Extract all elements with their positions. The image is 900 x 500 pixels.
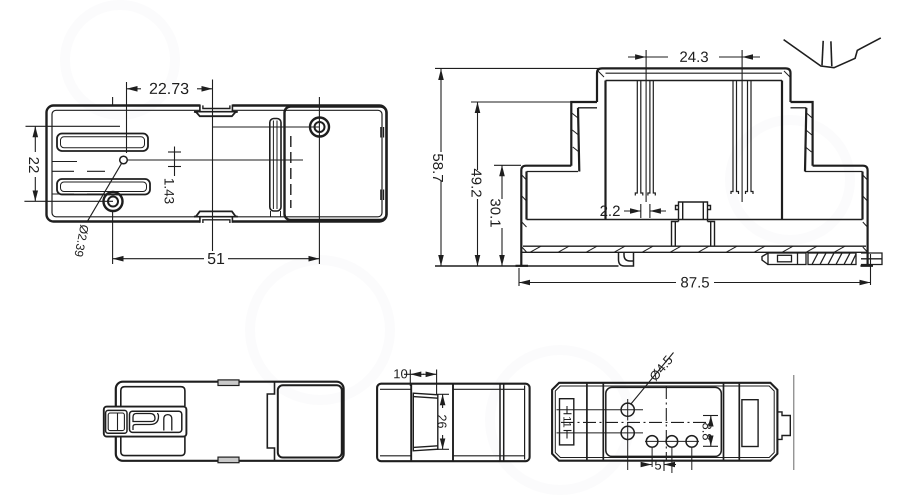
svg-text:24.3: 24.3 xyxy=(679,49,708,66)
svg-text:87.5: 87.5 xyxy=(680,274,709,291)
svg-text:8.8: 8.8 xyxy=(700,422,715,440)
svg-text:5: 5 xyxy=(654,457,661,472)
svg-text:51: 51 xyxy=(207,251,225,268)
svg-text:22: 22 xyxy=(25,157,42,174)
svg-text:1.43: 1.43 xyxy=(162,178,177,204)
svg-text:26: 26 xyxy=(435,415,449,429)
svg-text:10: 10 xyxy=(393,366,408,381)
svg-text:49.2: 49.2 xyxy=(468,168,485,197)
svg-text:2.2: 2.2 xyxy=(600,203,621,220)
svg-text:22.73: 22.73 xyxy=(149,81,189,98)
svg-text:58.7: 58.7 xyxy=(429,153,446,182)
svg-text:30.1: 30.1 xyxy=(487,198,504,227)
